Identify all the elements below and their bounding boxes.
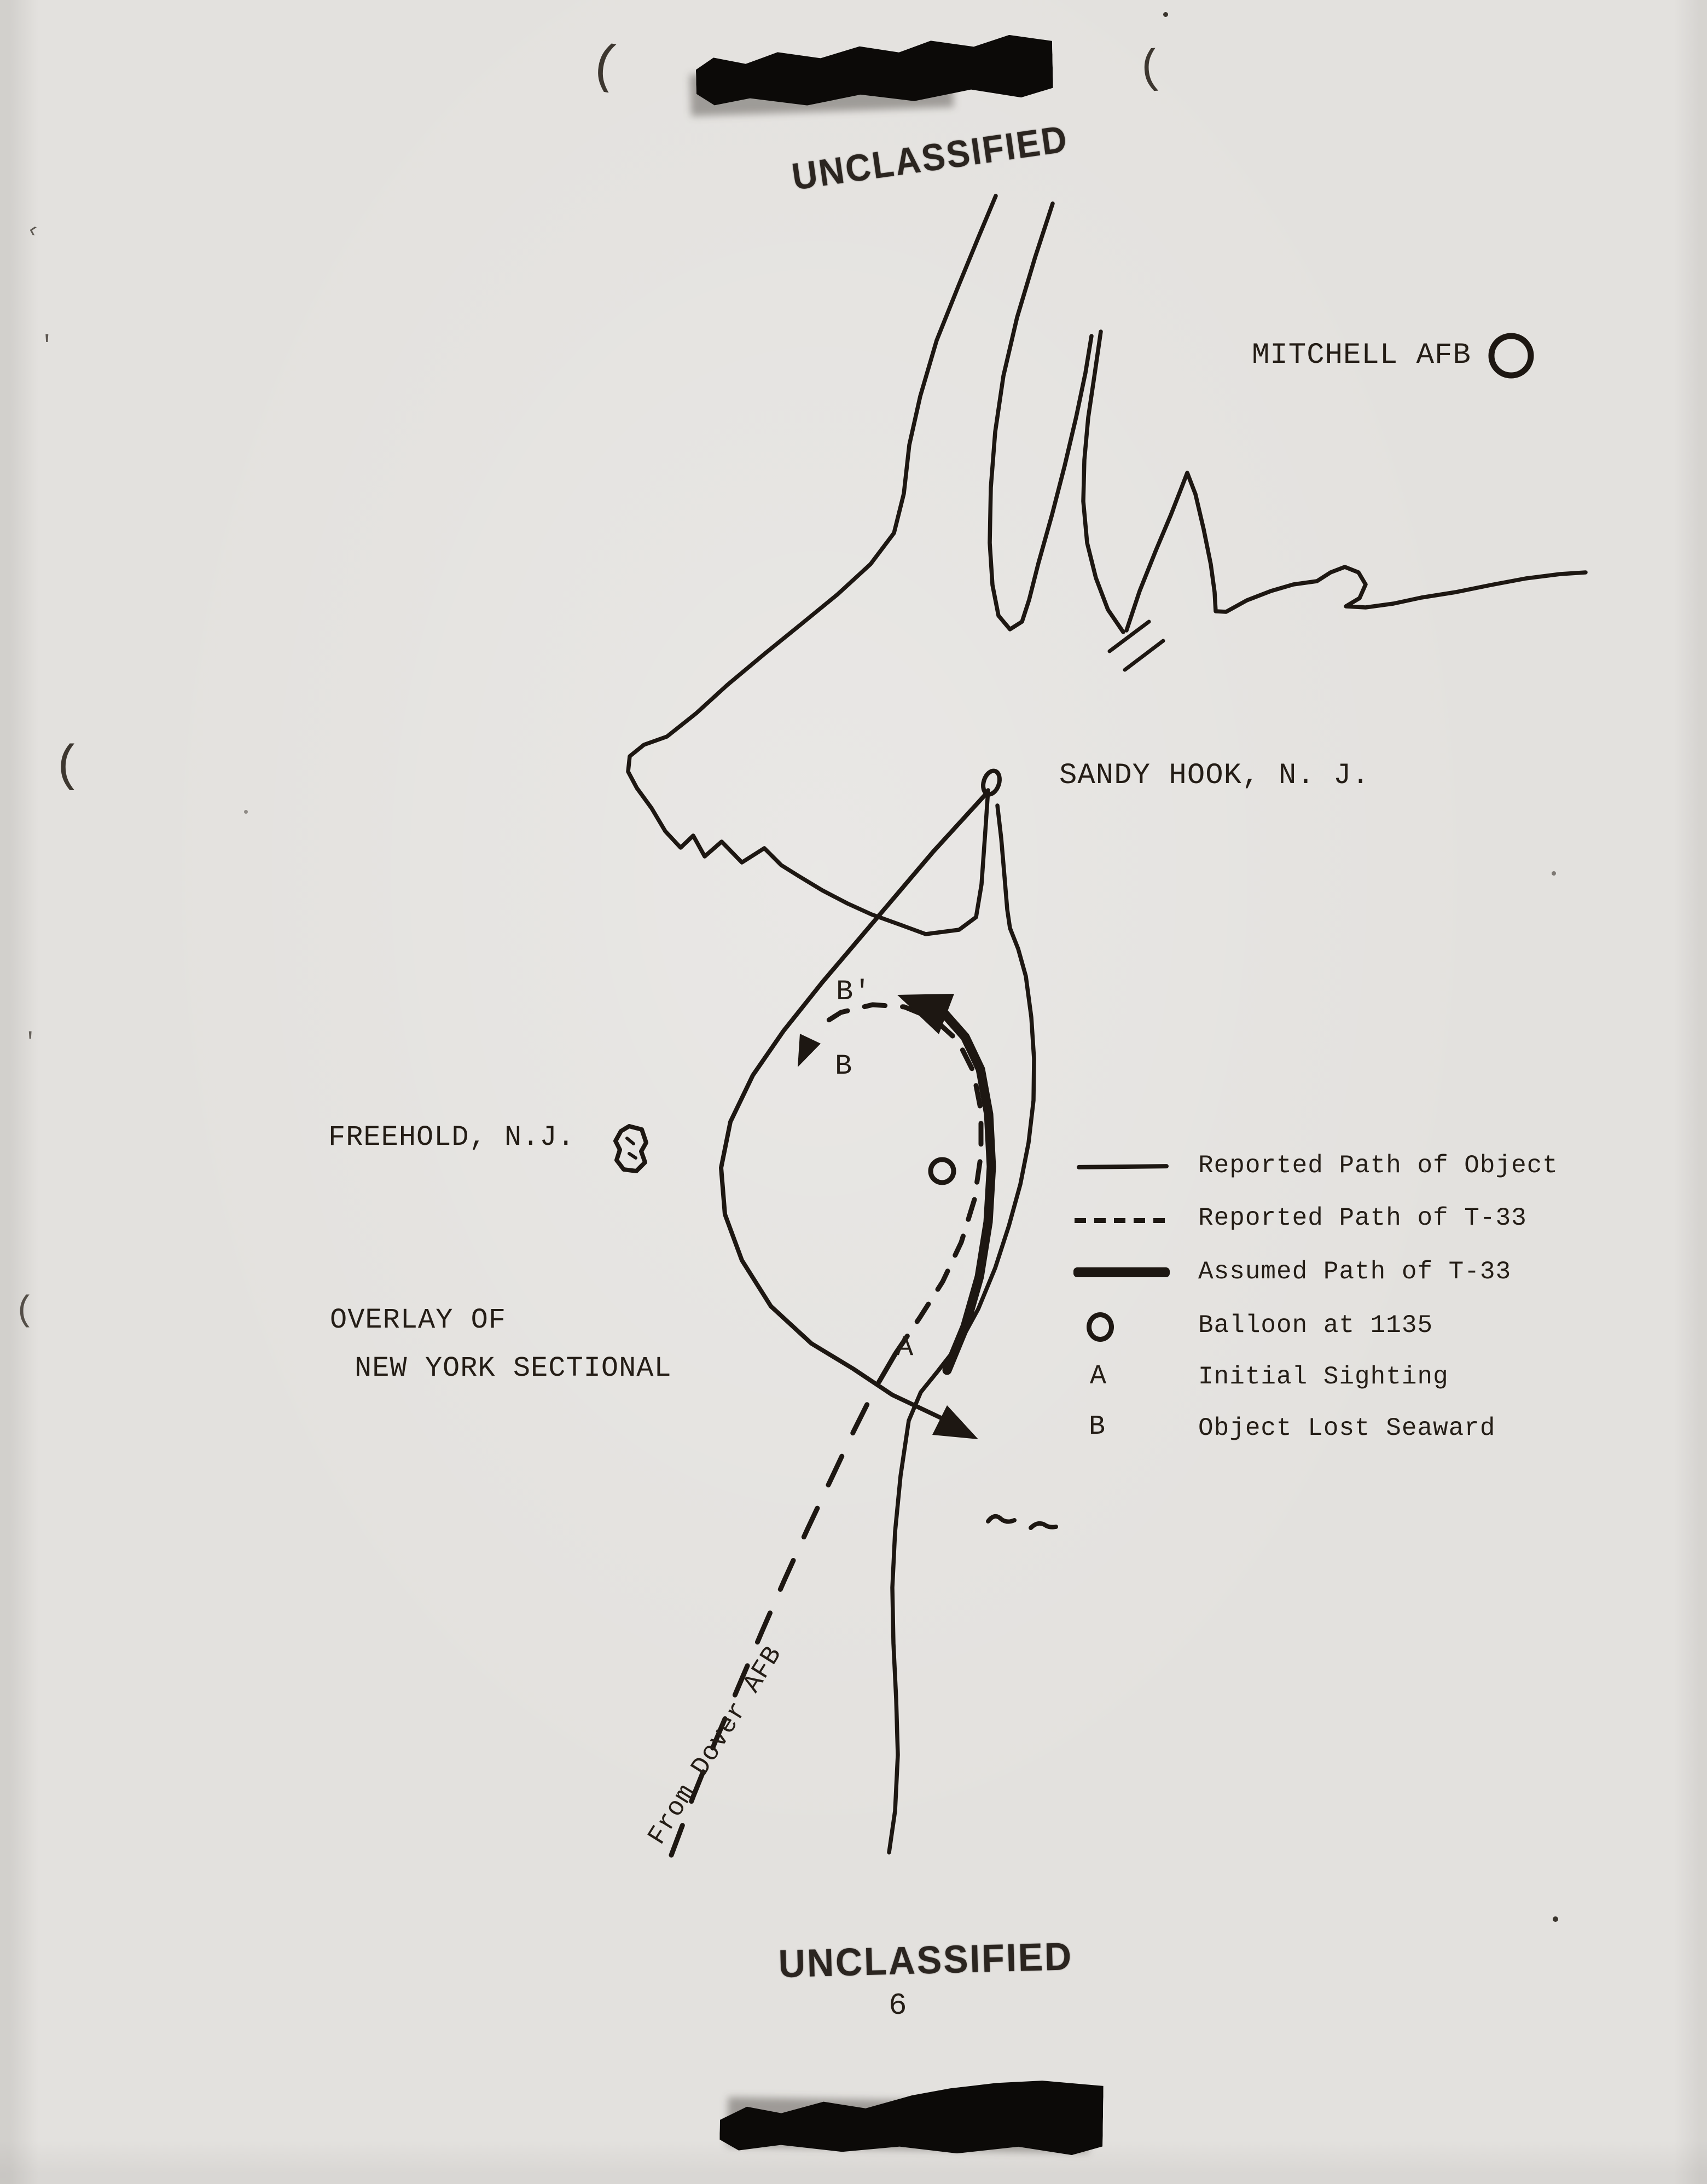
legend-balloon-circle <box>1087 1312 1114 1342</box>
legend-label-object-path: Reported Path of Object <box>1198 1152 1558 1179</box>
legend-label-balloon: Balloon at 1135 <box>1198 1312 1433 1339</box>
point-label-a: A <box>896 1333 914 1363</box>
t33-reported-arrowhead <box>798 1034 821 1067</box>
map-title-line2: NEW YORK SECTIONAL <box>355 1354 672 1384</box>
classification-stamp-bottom: UNCLASSIFIED <box>778 1934 1073 1986</box>
map-title-line1: OVERLAY OF <box>330 1306 506 1336</box>
sandy-hook-label: SANDY HOOK, N. J. <box>1059 761 1370 792</box>
point-label-b-prime: B' <box>836 977 871 1007</box>
map-drawing <box>0 0 1707 2184</box>
wave-squiggles <box>988 1516 1056 1528</box>
mitchell-afb-circle <box>1491 336 1531 375</box>
coastline-new-jersey <box>628 196 1034 1852</box>
legend-dashed-line-sample <box>1075 1218 1170 1223</box>
scanned-document-page: { "document": { "classification_stamp_to… <box>0 0 1707 2184</box>
sandy-hook-tip <box>980 769 1002 796</box>
balloon-symbol <box>931 1160 954 1183</box>
page-number: 6 <box>889 1990 908 2022</box>
legend-thick-line-sample <box>1073 1267 1170 1277</box>
freehold-town-hatch <box>627 1138 636 1158</box>
coastline-hudson-manhattan <box>990 204 1091 629</box>
t33-assumed-path <box>944 1013 991 1370</box>
bay-shore-marks <box>1110 622 1163 670</box>
object-path-line <box>721 795 985 1419</box>
object-path-arrowhead <box>932 1405 978 1439</box>
legend-marker-a: A <box>1090 1363 1107 1392</box>
legend-label-t33-assumed: Assumed Path of T-33 <box>1198 1259 1511 1285</box>
legend-label-t33-reported: Reported Path of T-33 <box>1198 1205 1527 1231</box>
legend-marker-b: B <box>1089 1413 1106 1442</box>
coastline-long-island <box>1127 473 1586 630</box>
freehold-label: FREEHOLD, N.J. <box>328 1123 575 1153</box>
point-label-b: B <box>835 1052 852 1082</box>
legend-label-initial-sighting: Initial Sighting <box>1198 1364 1449 1390</box>
legend-label-object-lost: Object Lost Seaward <box>1198 1415 1496 1441</box>
freehold-town-outline <box>616 1126 646 1171</box>
coastline-east-river <box>1083 332 1123 632</box>
mitchell-afb-label: MITCHELL AFB <box>1252 340 1471 372</box>
